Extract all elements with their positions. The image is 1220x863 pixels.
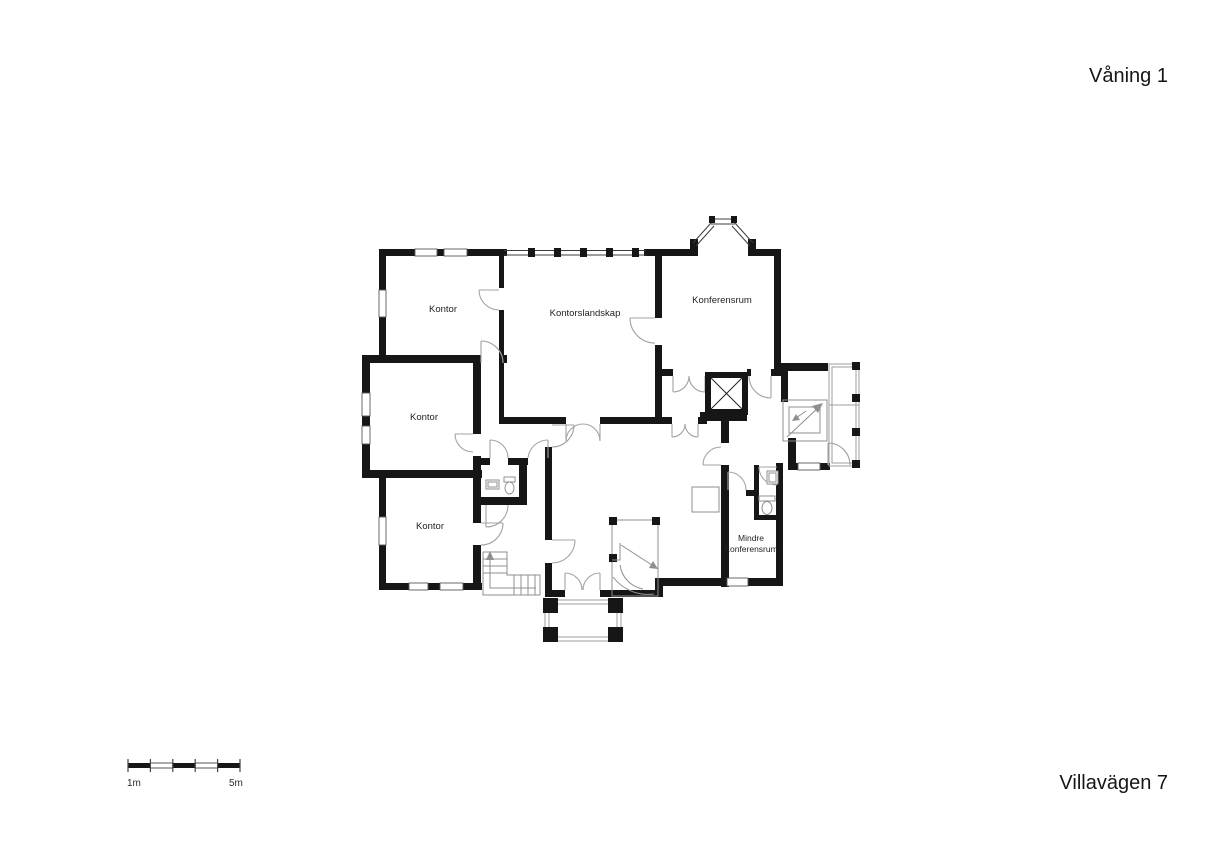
side-deck: [829, 362, 860, 468]
straight-stair-ne: [783, 400, 827, 441]
room-label-mindre-line2: Konferensrum: [724, 544, 777, 554]
wc-toilet-right-icon: [759, 496, 775, 501]
floorplan-page: Kontor Kontorslandskap Konferensrum Kont…: [0, 0, 1220, 863]
room-label-kontor-w: Kontor: [410, 412, 438, 423]
floorplan-drawing: Kontor Kontorslandskap Konferensrum Kont…: [0, 0, 1220, 863]
scale-end-label: 5m: [229, 778, 243, 789]
room-label-kontor-sw: Kontor: [416, 521, 444, 532]
wc-left: [486, 477, 515, 494]
wc-toilet-left-icon: [504, 477, 515, 482]
l-stair-sw: [483, 551, 540, 595]
address-title: Villavägen 7: [1059, 772, 1168, 794]
floor-title: Våning 1: [1089, 65, 1168, 87]
scale-start-label: 1m: [127, 778, 141, 789]
entrance-porch: [543, 598, 623, 642]
room-label-mindre-line1: Mindre: [738, 533, 764, 543]
bay-window: [693, 216, 753, 246]
curved-stair-hall: [609, 517, 660, 596]
scale-bar: 1m 5m: [127, 759, 243, 789]
hall-closet: [692, 487, 719, 512]
room-label-kontorslandskap: Kontorslandskap: [550, 308, 621, 319]
room-label-kontor-nw: Kontor: [429, 304, 457, 315]
glass-band: [504, 248, 646, 257]
elevator-shaft: [705, 372, 748, 415]
room-label-konferensrum: Konferensrum: [692, 295, 752, 306]
